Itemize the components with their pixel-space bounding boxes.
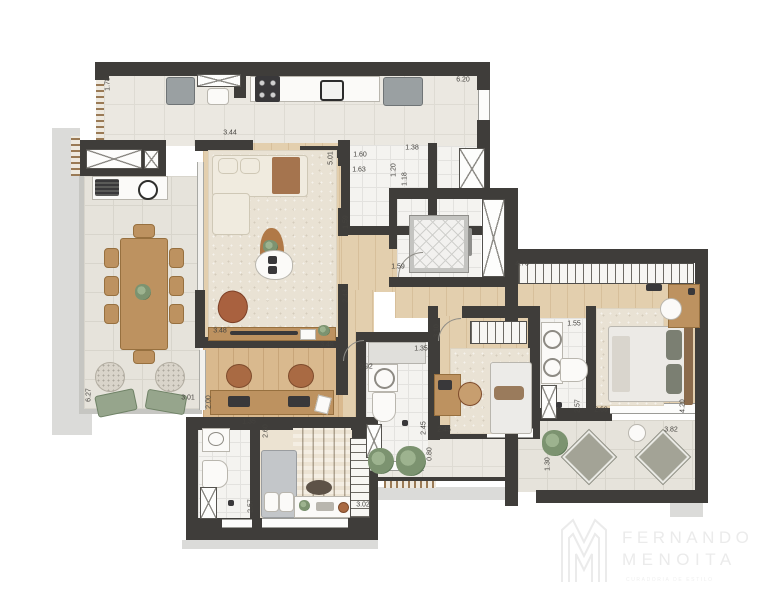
dimension-label: 1.63 [352, 167, 366, 174]
dimension-label: 2.43 [343, 289, 350, 303]
floor-plan-canvas: 1.783.446.201.601.635.011.381.201.181.59… [0, 0, 781, 600]
gourmet-cabinet-small [144, 150, 159, 169]
cooktop [255, 76, 280, 102]
office-monitor-2 [288, 396, 310, 407]
dimension-label: 3.10 [434, 324, 441, 338]
terrace-pouf-1 [95, 362, 125, 392]
laundry-sink [207, 88, 229, 105]
dimension-label: 2.45 [421, 421, 428, 435]
coffee-table-white [255, 250, 293, 280]
bbq-sink [138, 180, 158, 200]
wall-bedroom2-top-1 [428, 306, 438, 318]
dimension-label: 2.00 [206, 395, 213, 409]
slab-shadow-balcony [366, 487, 508, 500]
balcony-rail-hatch [384, 481, 436, 488]
dining-chair-6 [169, 304, 184, 324]
dimension-label: 1.38 [405, 145, 419, 152]
bedroom3-console-plant [299, 500, 310, 511]
balcony-plant-2 [396, 446, 426, 476]
kitchen-sink [320, 80, 344, 101]
laundry-wall-cabinet [197, 74, 241, 87]
bedroom3-console-item [338, 502, 349, 513]
dimension-label: 3.44 [223, 130, 237, 137]
wall-office-right [336, 337, 348, 395]
wall-core-bottom [389, 277, 507, 287]
bathm-basin-1 [543, 330, 562, 349]
master-pillow-1 [666, 330, 682, 360]
bedroom2-closet [470, 321, 527, 344]
dimension-label: 3.01 [181, 395, 195, 402]
bathm-shower-head [556, 402, 562, 408]
dimension-label: 0.92 [359, 364, 373, 371]
kitchen-window [478, 90, 490, 120]
dining-centerpiece-plant [135, 284, 151, 300]
dimension-label: 3.82 [664, 427, 678, 434]
tv [230, 331, 298, 335]
dimension-label: 2.60 [263, 424, 270, 438]
terrace-right-plant [542, 430, 568, 456]
sofa-pillow-1 [218, 158, 238, 174]
wall-bl-left [186, 417, 198, 532]
wall-top [100, 62, 490, 76]
wall-right-kitchen-upper [477, 62, 490, 90]
elevator-shaft [482, 199, 505, 277]
dimension-label: 2.45 [437, 427, 451, 434]
bath3-shower-door [200, 487, 217, 519]
wall-bath2-top [356, 332, 430, 342]
bedroom3-window [262, 518, 348, 528]
dining-chair-4 [169, 248, 184, 268]
brand-name-line2: MENOITA [622, 550, 737, 570]
dining-chair-3 [104, 304, 119, 324]
wall-terrace-right-bottom [536, 490, 708, 503]
master-chair [660, 298, 682, 320]
elevator-handrail [468, 228, 472, 256]
terrace-pouf-2 [155, 362, 185, 392]
dimension-label: 2.57 [248, 499, 255, 513]
balcony-plant-1 [368, 448, 394, 474]
shaft-door-closet [459, 148, 485, 190]
coffee-table-tray [268, 256, 277, 264]
bedroom3-pillow-2 [279, 492, 294, 512]
wall-terrace-right-right [695, 418, 708, 503]
dimension-label: 2.57 [575, 399, 582, 413]
slab-shadow-bottom [182, 540, 378, 549]
dining-chair-foot [133, 350, 155, 364]
gourmet-cabinet [86, 149, 142, 169]
sideboard-object [300, 329, 316, 340]
wall-master-left-stub [505, 263, 518, 321]
bbq-grill [95, 179, 119, 196]
wall-bathm-suite-divider [586, 306, 596, 418]
bath3-toilet [202, 460, 228, 488]
master-tv-object [646, 284, 662, 291]
dining-chair-5 [169, 276, 184, 296]
dimension-label: 5.01 [328, 151, 335, 165]
living-terrace-glass [197, 162, 204, 290]
wall-master-right [695, 249, 708, 421]
wall-living-right-1 [338, 140, 348, 166]
terrace-left-railing [79, 176, 84, 414]
dimension-label: 1.60 [353, 152, 367, 159]
bath3-shower-head [228, 500, 234, 506]
bathm-toilet [560, 358, 588, 382]
brand-monogram-icon [556, 514, 612, 586]
dimension-label: 2.69 [594, 407, 608, 414]
bedroom2-laptop [438, 380, 452, 390]
bath2-drain [402, 420, 408, 426]
refrigerator [383, 77, 423, 106]
bedroom3-console-tray [316, 502, 334, 511]
dimension-label: 4.76 [515, 261, 529, 268]
window-hatch-gourmet [71, 136, 80, 176]
master-closet [518, 263, 694, 284]
office-chair-1 [226, 364, 252, 388]
dimension-label: 4.20 [680, 399, 687, 413]
bath2-basin [374, 368, 395, 389]
bedroom3-pillow-1 [264, 492, 279, 512]
dimension-label: 1.59 [391, 264, 405, 271]
washing-machine [166, 77, 195, 105]
wall-living-left-stub [195, 290, 205, 340]
dimension-label: 3.02 [356, 502, 370, 509]
sofa-throw [272, 157, 300, 194]
bathm-shower-door [541, 385, 557, 419]
bedroom2-chair [458, 382, 482, 406]
bathroom3-window [222, 519, 252, 528]
wall-bedroom2-top-2 [462, 306, 532, 318]
master-throw [612, 336, 630, 392]
dining-chair-1 [104, 248, 119, 268]
dimension-label: 3.48 [213, 328, 227, 335]
lounge-side-table [628, 424, 646, 442]
dimension-label: 1.35 [414, 346, 428, 353]
office-monitor-1 [228, 396, 250, 407]
window-hatch-service [96, 80, 104, 140]
dimension-label: 1.18 [402, 172, 409, 186]
dimension-label: 1.78 [105, 77, 112, 91]
dimension-label: 1.30 [545, 457, 552, 471]
bedroom3-pouf [306, 480, 332, 495]
dining-chair-2 [104, 276, 119, 296]
sofa-pillow-2 [240, 158, 260, 174]
brand-name-line1: FERNANDO [622, 528, 753, 548]
sofa-chaise [212, 193, 250, 235]
dimension-label: 1.35 [242, 419, 256, 426]
sideboard-plant [318, 325, 330, 336]
bath3-basin [208, 432, 224, 446]
dimension-label: 1.55 [567, 321, 581, 328]
dimension-label: 1.20 [391, 163, 398, 177]
wall-master-top [505, 249, 708, 263]
dimension-label: 6.20 [456, 77, 470, 84]
dimension-label: 1.59 [343, 215, 350, 229]
office-chair-2 [288, 364, 314, 388]
brand-tagline: CURADORIA DE ESTILO [626, 577, 714, 583]
dimension-label: 0.80 [427, 447, 434, 461]
master-pillow-2 [666, 364, 682, 394]
dining-chair-head [133, 224, 155, 238]
master-desk-lamp [688, 288, 695, 295]
bedroom2-pillow [494, 386, 524, 400]
dimension-label: 3.48 [320, 342, 334, 349]
dimension-label: 6.27 [86, 388, 93, 402]
wall-core-top [389, 188, 518, 199]
coffee-table-tray-2 [268, 266, 277, 274]
wall-core-left [389, 197, 397, 249]
master-headboard [684, 321, 693, 405]
bath2-toilet [372, 392, 396, 422]
